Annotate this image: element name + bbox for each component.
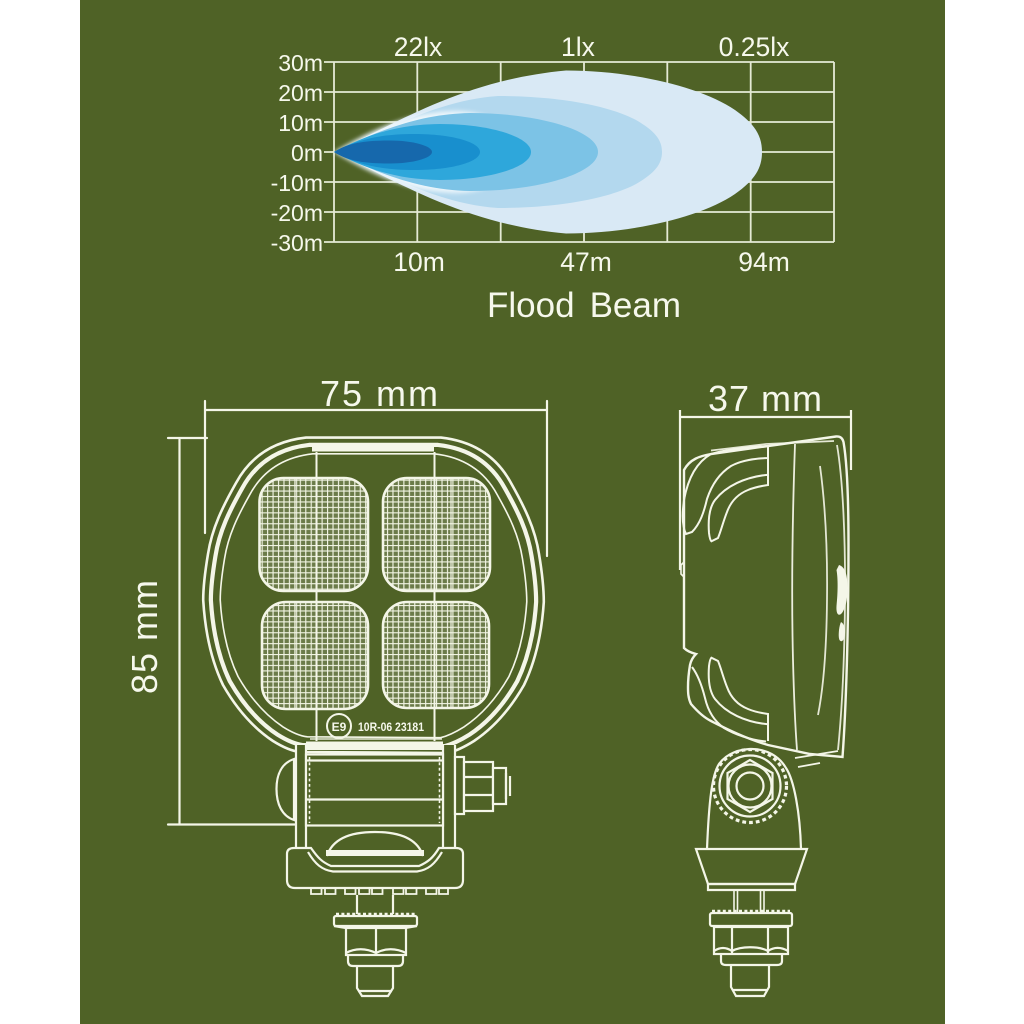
svg-text:10m: 10m [393, 247, 445, 277]
svg-text:-30m: -30m [271, 230, 323, 256]
svg-text:22lx: 22lx [394, 32, 443, 62]
svg-text:FloodBeam: FloodBeam [487, 286, 681, 325]
svg-text:0m: 0m [291, 140, 323, 166]
svg-text:-10m: -10m [271, 170, 323, 196]
svg-text:0.25lx: 0.25lx [719, 32, 790, 62]
svg-text:1lx: 1lx [561, 32, 595, 62]
svg-text:37 mm: 37 mm [708, 378, 822, 419]
svg-text:-20m: -20m [271, 200, 323, 226]
svg-text:47m: 47m [560, 247, 612, 277]
svg-text:94m: 94m [738, 247, 790, 277]
svg-text:30m: 30m [278, 50, 323, 76]
svg-text:85 mm: 85 mm [124, 580, 165, 694]
svg-text:10m: 10m [278, 110, 323, 136]
svg-text:20m: 20m [278, 80, 323, 106]
svg-text:10R-06 23181: 10R-06 23181 [358, 720, 424, 734]
svg-text:E9: E9 [332, 720, 347, 734]
svg-text:75 mm: 75 mm [320, 373, 438, 414]
